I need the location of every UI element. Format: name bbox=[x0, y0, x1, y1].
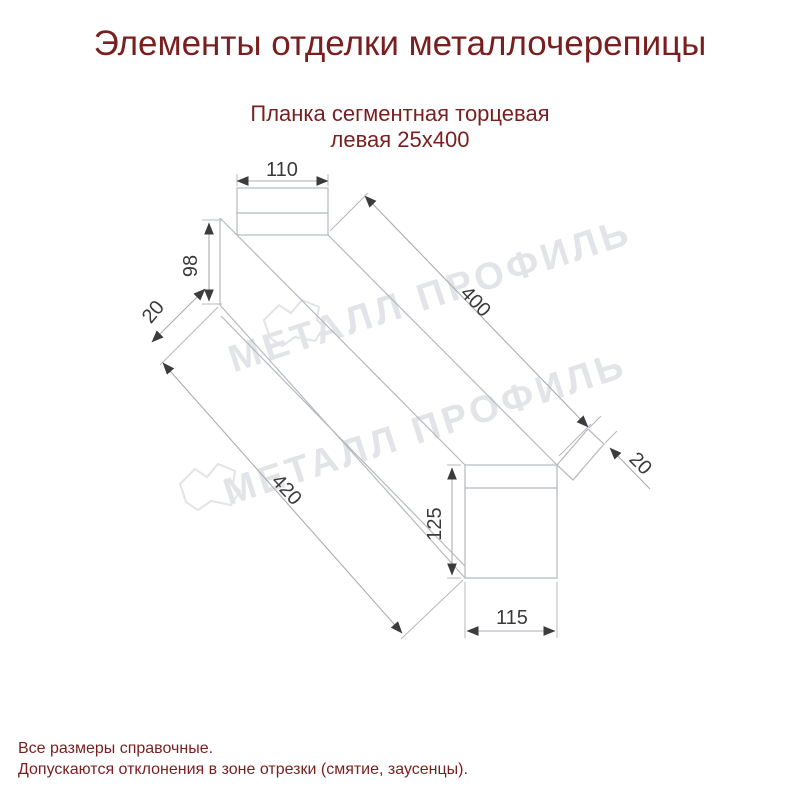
dim-20-far-label: 20 bbox=[625, 448, 656, 479]
dim-110-label: 110 bbox=[266, 159, 298, 181]
dim-400-extension bbox=[330, 193, 368, 231]
near-end-corner-edge bbox=[220, 218, 237, 235]
dim-420-extension bbox=[160, 307, 218, 365]
footer-notes: Все размеры справочные. Допускаются откл… bbox=[18, 738, 468, 780]
footer-note-line2: Допускаются отклонения в зоне отрезки (с… bbox=[18, 759, 468, 780]
footer-note-line1: Все размеры справочные. bbox=[18, 738, 468, 759]
watermark-text: МЕТАЛЛ ПРОФИЛЬ bbox=[224, 211, 637, 381]
dim-125-label: 125 bbox=[424, 507, 446, 540]
dim-420-extension bbox=[401, 580, 463, 639]
dim-115-label: 115 bbox=[496, 607, 528, 629]
dim-20-near-label: 20 bbox=[138, 297, 169, 328]
product-drawing-page: { "page": { "title": "Элементы отделки м… bbox=[0, 0, 800, 800]
far-end-flap bbox=[557, 429, 604, 480]
far-end-face bbox=[465, 465, 557, 578]
dim-98-label: 98 bbox=[180, 255, 202, 277]
dim-20-far-extension bbox=[605, 431, 617, 443]
dim-20-far-extension bbox=[589, 416, 601, 428]
dim-400-extension bbox=[559, 424, 591, 456]
near-end-flange-face bbox=[237, 188, 328, 235]
technical-drawing: МЕТАЛЛ ПРОФИЛЬ МЕТАЛЛ ПРОФИЛЬ 110 98 20 … bbox=[0, 0, 800, 800]
